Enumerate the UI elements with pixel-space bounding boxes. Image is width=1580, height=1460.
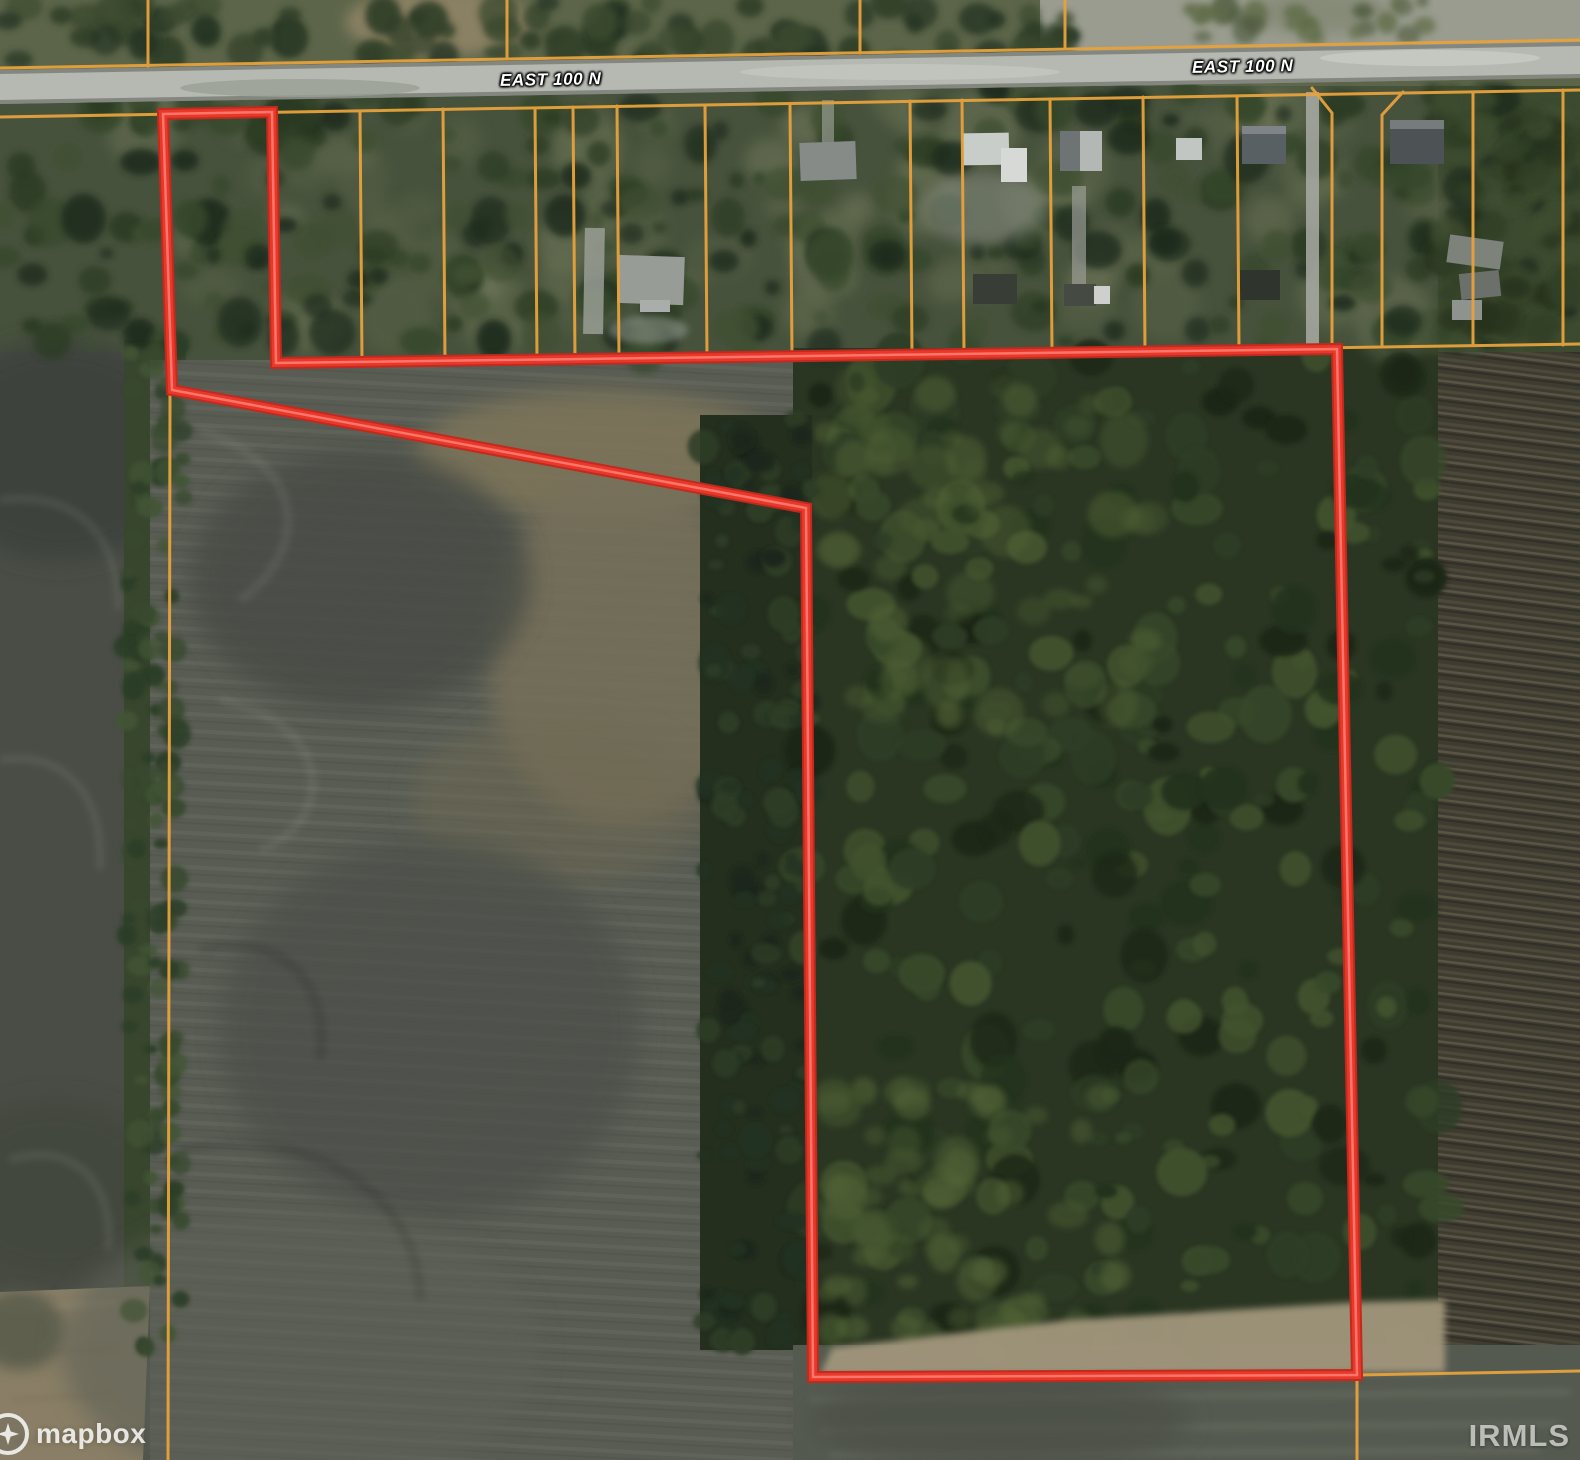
satellite-imagery bbox=[0, 0, 1580, 1460]
satellite-map-canvas[interactable]: EAST 100 N EAST 100 N mapbox IRMLS bbox=[0, 0, 1580, 1460]
road-label-east-100n-west: EAST 100 N bbox=[500, 69, 602, 91]
mapbox-logo-icon bbox=[0, 1411, 31, 1457]
mapbox-attribution-link[interactable]: mapbox bbox=[0, 1412, 146, 1456]
road-label-east-100n-east: EAST 100 N bbox=[1192, 56, 1294, 78]
mapbox-wordmark: mapbox bbox=[36, 1418, 146, 1450]
irmls-watermark: IRMLS bbox=[1469, 1418, 1570, 1454]
